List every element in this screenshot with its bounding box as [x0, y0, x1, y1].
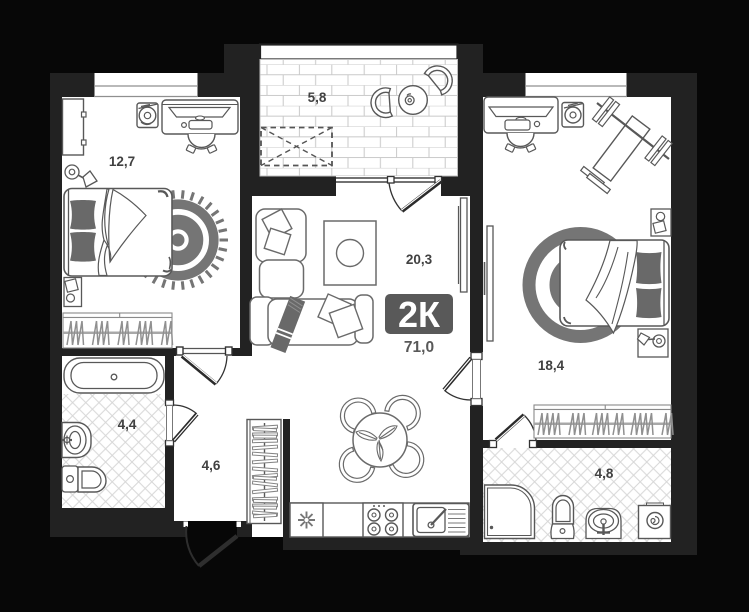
svg-text:4,8: 4,8 — [595, 466, 614, 481]
svg-text:71,0: 71,0 — [404, 339, 434, 356]
svg-text:5,8: 5,8 — [308, 90, 327, 105]
svg-text:2К: 2К — [398, 294, 441, 335]
svg-text:4,6: 4,6 — [202, 458, 221, 473]
svg-text:20,3: 20,3 — [406, 252, 433, 267]
svg-text:18,4: 18,4 — [538, 358, 565, 373]
svg-text:12,7: 12,7 — [109, 154, 135, 169]
svg-text:4,4: 4,4 — [118, 417, 137, 432]
